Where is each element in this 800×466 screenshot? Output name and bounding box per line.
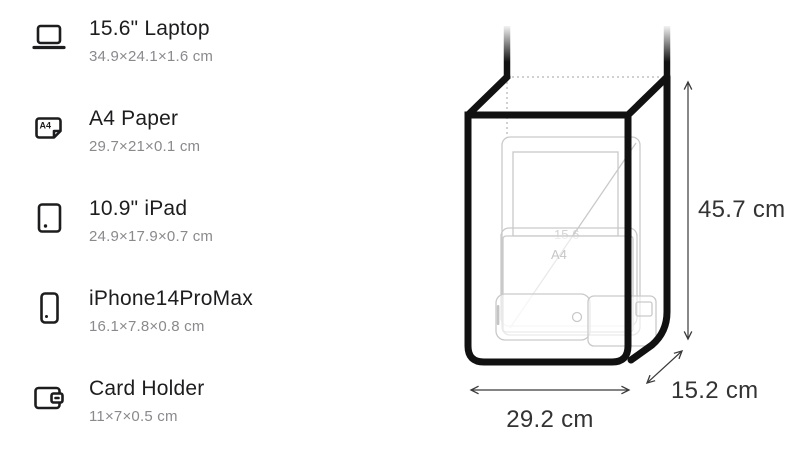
item-name: iPhone14ProMax xyxy=(89,286,253,312)
item-dimensions: 29.7×21×0.1 cm xyxy=(89,138,200,156)
item-dimensions: 34.9×24.1×1.6 cm xyxy=(89,48,213,66)
depth-label: 15.2 cm xyxy=(671,377,758,404)
list-item-ipad: 10.9" iPad 24.9×17.9×0.7 cm xyxy=(30,196,410,246)
a4-icon-label: A4 xyxy=(40,121,52,131)
ghost-a4-label: A4 xyxy=(551,247,567,262)
ipad-icon xyxy=(30,199,68,237)
list-item-a4-paper: A4 A4 Paper 29.7×21×0.1 cm xyxy=(30,106,410,156)
list-item-laptop: 15.6" Laptop 34.9×24.1×1.6 cm xyxy=(30,16,410,66)
card-holder-icon xyxy=(30,379,68,417)
height-label: 45.7 cm xyxy=(698,196,785,223)
ghost-iphone xyxy=(496,294,590,340)
item-name: Card Holder xyxy=(89,376,204,402)
item-dimensions: 24.9×17.9×0.7 cm xyxy=(89,228,213,246)
a4-paper-icon: A4 xyxy=(30,109,68,147)
item-name: 10.9" iPad xyxy=(89,196,213,222)
ghost-iphone-button xyxy=(497,305,500,325)
bag-top-right-edge xyxy=(628,77,667,115)
list-item-iphone: iPhone14ProMax 16.1×7.8×0.8 cm xyxy=(30,286,410,336)
ghost-items: 15.6 A4 xyxy=(496,137,656,346)
bag-top-left-edge xyxy=(468,77,507,115)
item-name: 15.6" Laptop xyxy=(89,16,213,42)
item-dimensions: 11×7×0.5 cm xyxy=(89,408,204,426)
ghost-card-holder xyxy=(588,296,656,346)
fit-items-list: 15.6" Laptop 34.9×24.1×1.6 cm A4 A4 Pape… xyxy=(30,16,410,466)
bag-dimension-diagram: 15.6 A4 45.7 cm 29.2 cm 15.2 cm xyxy=(430,0,800,455)
item-name: A4 Paper xyxy=(89,106,200,132)
iphone-icon xyxy=(30,289,68,327)
list-item-card-holder: Card Holder 11×7×0.5 cm xyxy=(30,376,410,426)
laptop-icon xyxy=(30,19,68,57)
item-dimensions: 16.1×7.8×0.8 cm xyxy=(89,318,253,336)
ghost-laptop-screen xyxy=(513,152,618,236)
width-label: 29.2 cm xyxy=(506,406,593,433)
